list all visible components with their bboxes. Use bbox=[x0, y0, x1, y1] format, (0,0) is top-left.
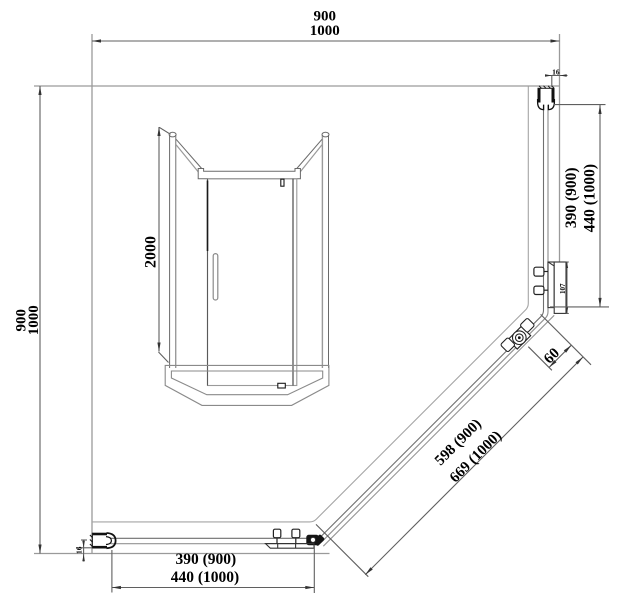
svg-text:390 (900): 390 (900) bbox=[175, 551, 236, 568]
svg-text:107: 107 bbox=[559, 283, 567, 294]
svg-text:1000: 1000 bbox=[26, 305, 42, 335]
svg-text:1000: 1000 bbox=[310, 23, 340, 39]
svg-text:16: 16 bbox=[75, 546, 84, 554]
svg-text:2000: 2000 bbox=[143, 236, 160, 268]
svg-text:440 (1000): 440 (1000) bbox=[581, 164, 598, 232]
svg-text:390 (900): 390 (900) bbox=[563, 167, 580, 228]
svg-text:16: 16 bbox=[552, 68, 560, 77]
svg-text:440 (1000): 440 (1000) bbox=[171, 569, 239, 586]
